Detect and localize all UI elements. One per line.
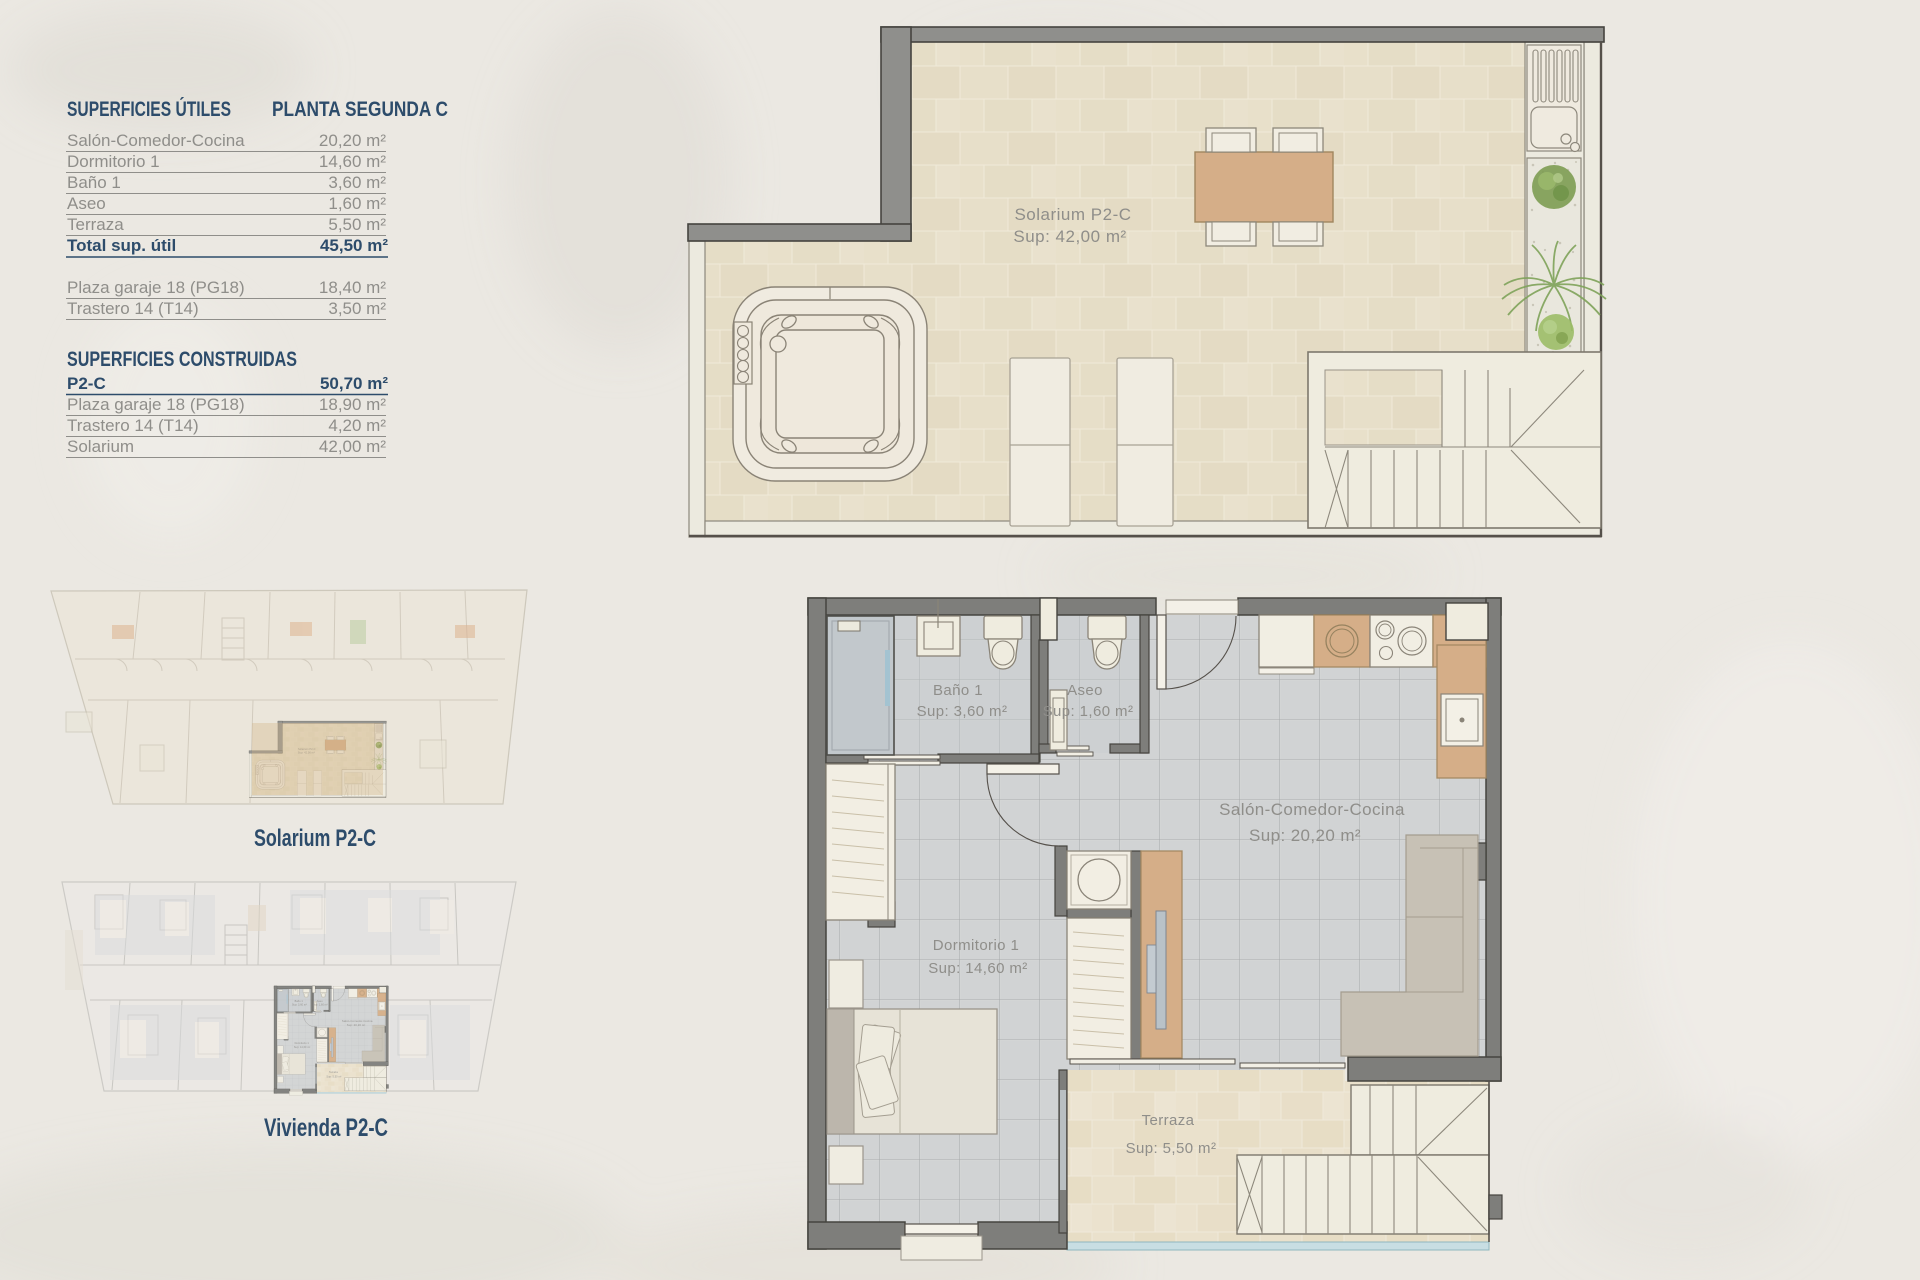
svg-text:SUPERFICIES CONSTRUIDAS: SUPERFICIES CONSTRUIDAS	[67, 348, 297, 371]
svg-text:14,60 m²: 14,60 m²	[319, 152, 386, 171]
svg-text:20,20 m²: 20,20 m²	[319, 131, 386, 150]
svg-text:Terraza: Terraza	[1142, 1112, 1195, 1129]
svg-text:Trastero 14 (T14): Trastero 14 (T14)	[67, 416, 199, 435]
svg-text:Solarium P2-C: Solarium P2-C	[1014, 205, 1131, 224]
svg-text:3,60 m²: 3,60 m²	[328, 173, 386, 192]
svg-text:50,70 m²: 50,70 m²	[320, 374, 388, 393]
svg-text:1,60 m²: 1,60 m²	[328, 194, 386, 213]
svg-text:Plaza garaje 18 (PG18): Plaza garaje 18 (PG18)	[67, 278, 245, 297]
svg-text:Salón-Comedor-Cocina: Salón-Comedor-Cocina	[67, 131, 245, 150]
svg-text:Salón-Comedor-Cocina: Salón-Comedor-Cocina	[1219, 800, 1405, 819]
svg-text:Sup: 20,20 m²: Sup: 20,20 m²	[1249, 826, 1361, 845]
svg-text:P2-C: P2-C	[67, 374, 106, 393]
svg-text:3,50 m²: 3,50 m²	[328, 299, 386, 318]
svg-text:42,00 m²: 42,00 m²	[319, 437, 386, 456]
svg-text:Baño 1: Baño 1	[67, 173, 121, 192]
svg-text:4,20 m²: 4,20 m²	[328, 416, 386, 435]
svg-text:18,90 m²: 18,90 m²	[319, 395, 386, 414]
svg-text:Solarium: Solarium	[67, 437, 134, 456]
svg-text:45,50 m²: 45,50 m²	[320, 236, 388, 255]
svg-text:Dormitorio 1: Dormitorio 1	[67, 152, 160, 171]
svg-text:Dormitorio 1: Dormitorio 1	[933, 937, 1020, 954]
svg-text:Trastero 14 (T14): Trastero 14 (T14)	[67, 299, 199, 318]
svg-text:Plaza garaje 18 (PG18): Plaza garaje 18 (PG18)	[67, 395, 245, 414]
svg-text:5,50 m²: 5,50 m²	[328, 215, 386, 234]
svg-text:Sup: 14,60 m²: Sup: 14,60 m²	[928, 960, 1027, 977]
svg-text:PLANTA SEGUNDA C: PLANTA SEGUNDA C	[272, 98, 448, 121]
svg-text:18,40 m²: 18,40 m²	[319, 278, 386, 297]
svg-text:Sup: 5,50 m²: Sup: 5,50 m²	[1126, 1140, 1217, 1157]
svg-text:Sup: 42,00 m²: Sup: 42,00 m²	[1013, 227, 1126, 246]
svg-text:Sup: 3,60 m²: Sup: 3,60 m²	[917, 703, 1008, 720]
svg-text:Aseo: Aseo	[67, 194, 106, 213]
svg-text:Solarium P2-C: Solarium P2-C	[254, 825, 376, 852]
svg-text:SUPERFICIES ÚTILES: SUPERFICIES ÚTILES	[67, 97, 231, 121]
svg-text:Sup: 1,60 m²: Sup: 1,60 m²	[1043, 703, 1134, 720]
svg-text:Vivienda P2-C: Vivienda P2-C	[264, 1114, 388, 1142]
svg-text:Total sup. útil: Total sup. útil	[67, 236, 176, 255]
svg-text:Baño 1: Baño 1	[933, 682, 983, 699]
svg-text:Terraza: Terraza	[67, 215, 124, 234]
svg-text:Aseo: Aseo	[1067, 682, 1103, 699]
